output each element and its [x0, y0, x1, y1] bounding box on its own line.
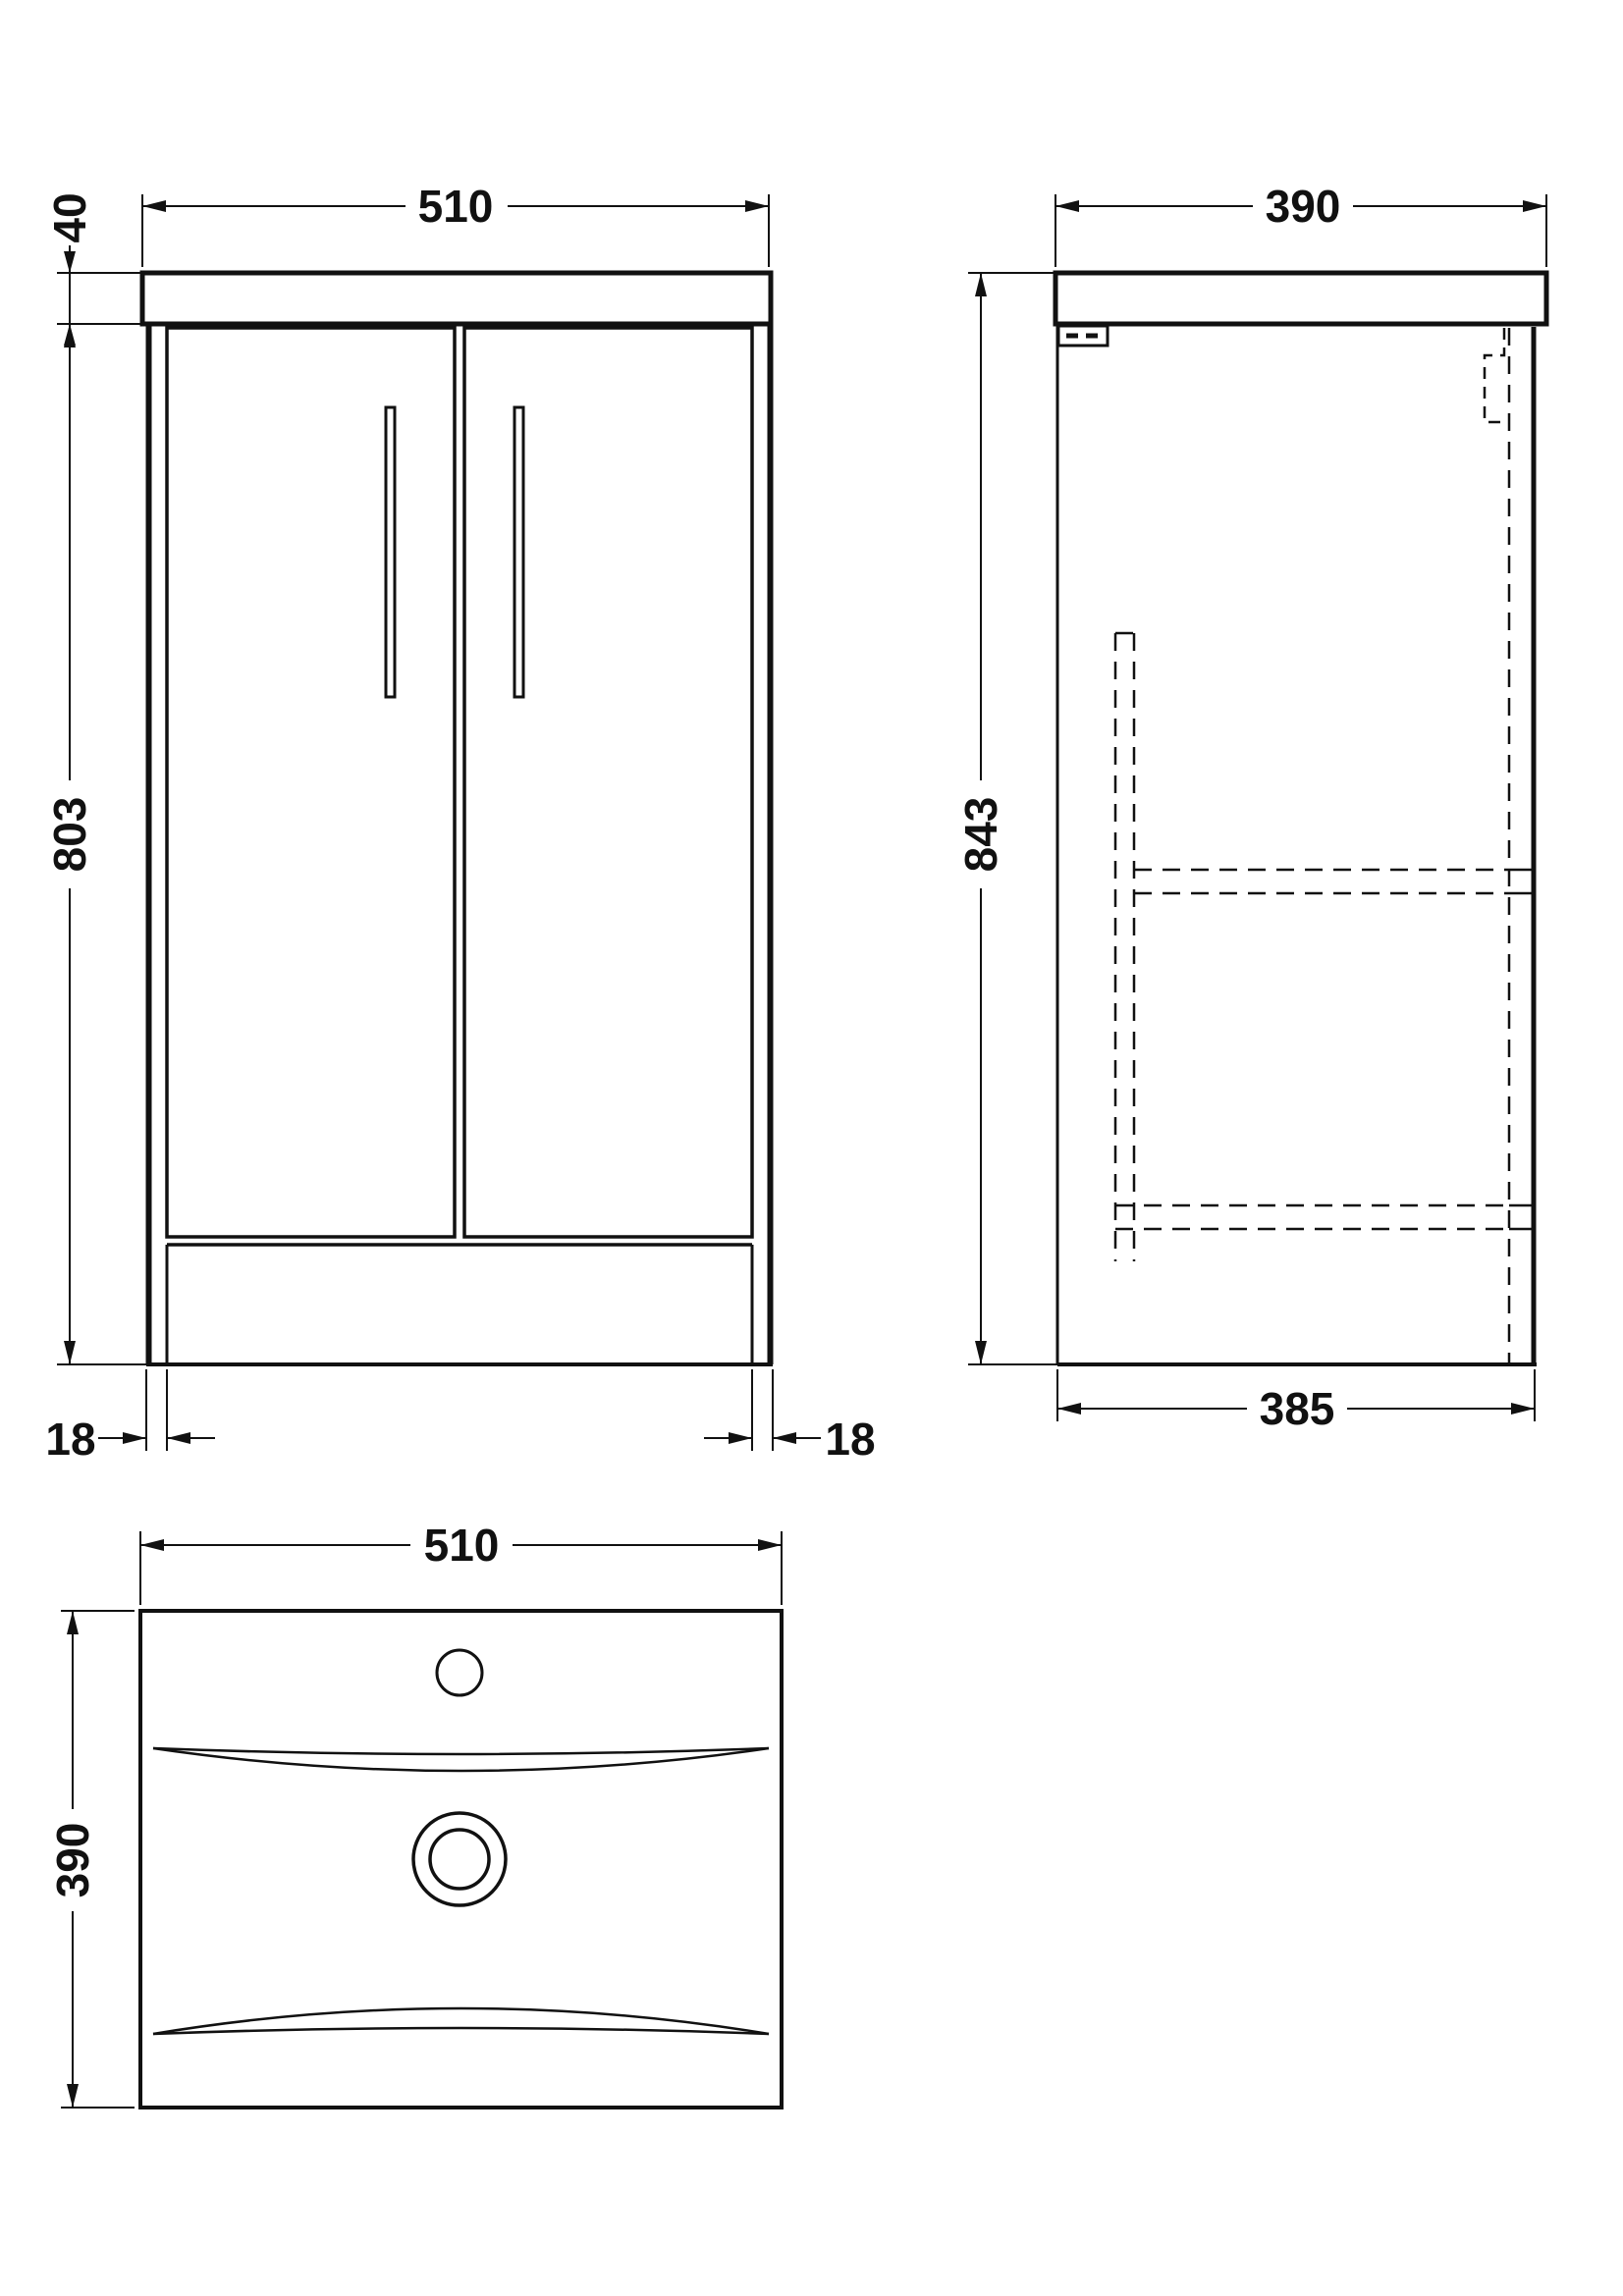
front-right-door-handle — [514, 407, 523, 697]
plan-basin-rear-edge — [153, 2008, 769, 2034]
front-left-door — [167, 328, 455, 1237]
side-hinge-hidden — [1485, 328, 1510, 422]
side-hinge-plate — [1058, 326, 1108, 346]
front-left-leg-label: 18 — [45, 1414, 95, 1465]
side-countertop — [1055, 273, 1546, 324]
plan-waste-inner — [430, 1830, 489, 1889]
side-internal-hidden-lines — [1115, 633, 1509, 1261]
plan-basin-outline — [140, 1611, 782, 2108]
side-depth-label: 390 — [1266, 181, 1341, 232]
side-height-label: 843 — [955, 797, 1006, 873]
front-right-leg-label: 18 — [825, 1414, 875, 1465]
plan-basin-front-edge — [153, 1748, 769, 1771]
front-countertop — [142, 273, 771, 324]
plan-tap-hole — [437, 1650, 482, 1695]
plan-view: 510 390 — [47, 1520, 782, 2108]
plan-waste-outer — [413, 1813, 506, 1905]
side-shelf-end-ticks — [1509, 870, 1532, 1229]
front-view: 510 40 803 18 — [44, 181, 876, 1465]
side-view: 390 843 385 — [955, 181, 1546, 1434]
side-base-depth-label: 385 — [1260, 1383, 1335, 1434]
front-left-door-handle — [386, 407, 395, 697]
front-right-leg-dimension — [704, 1369, 821, 1451]
front-width-label: 510 — [418, 181, 494, 232]
plan-width-label: 510 — [424, 1520, 500, 1571]
front-right-door — [464, 328, 752, 1237]
plan-depth-label: 390 — [47, 1823, 98, 1898]
front-body-height-label: 803 — [44, 797, 95, 873]
front-left-leg-dimension — [98, 1369, 215, 1451]
drawing-sheet: 510 40 803 18 — [0, 0, 1623, 2296]
front-top-thickness-label: 40 — [44, 192, 95, 242]
